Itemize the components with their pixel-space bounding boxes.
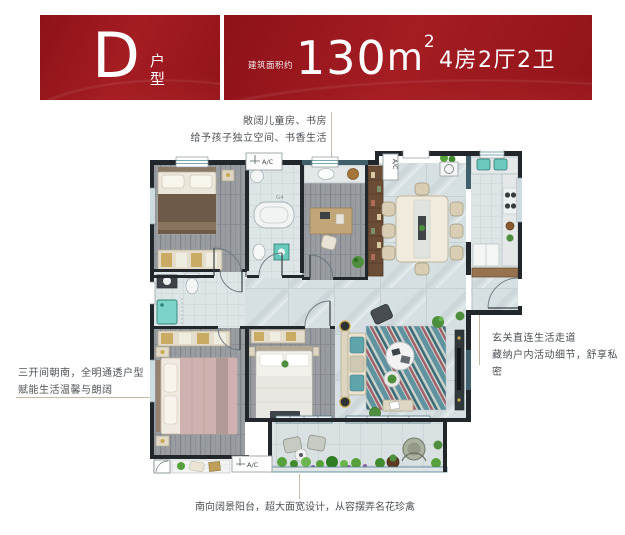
unit-letter: D: [92, 25, 140, 87]
area-value: 130: [296, 35, 387, 81]
ac-side-label: A/C: [391, 159, 398, 169]
annotation-south-bays: 三开间朝南，全明通透户型 赋能生活温馨与朗阔: [18, 365, 144, 399]
ac-bottom-label: A/C: [247, 461, 259, 469]
area-unit: m: [387, 39, 423, 76]
rooms-label: 4房2厅2卫: [439, 42, 556, 74]
area-prefix: 建筑面积约: [248, 59, 293, 71]
annotation-children-room: 敞阔儿童房、书房 给予孩子独立空间、书香生活: [191, 113, 328, 147]
area-superscript: 2: [424, 32, 435, 52]
annotation-line: 敞阔儿童房、书房: [191, 113, 328, 130]
annotation-line: 南向阔景阳台，超大面宽设计，从容摆弄名花珍禽: [195, 499, 415, 516]
unit-type-badge: D 户型: [40, 15, 220, 100]
flower-bay: [154, 460, 230, 473]
annotation-line: 给予孩子独立空间、书香生活: [191, 130, 328, 147]
ac-unit-bottom: A/C: [232, 456, 272, 472]
leader-line-left: [16, 397, 158, 398]
ac-unit-side: A/C: [383, 154, 398, 180]
ac-unit-top: A/C: [246, 153, 282, 170]
floor-plan: G4: [150, 150, 522, 480]
annotation-line: 三开间朝南，全明通透户型: [18, 365, 144, 382]
ac-top-label: A/C: [262, 158, 274, 166]
bookshelf: [368, 166, 383, 276]
annotation-balcony: 南向阔景阳台，超大面宽设计，从容摆弄名花珍禽: [195, 499, 415, 516]
unit-type-label: 户型: [147, 53, 168, 89]
area-banner: 建筑面积约 130 m 2 4房2厅2卫: [224, 15, 592, 100]
floorplan-card: D 户型 建筑面积约 130 m 2 4房2厅2卫 敞阔儿童房、书房 给予孩子独…: [0, 0, 625, 535]
window-code-label: G4: [276, 195, 284, 201]
floor-plan-rendering: G4: [150, 150, 522, 480]
